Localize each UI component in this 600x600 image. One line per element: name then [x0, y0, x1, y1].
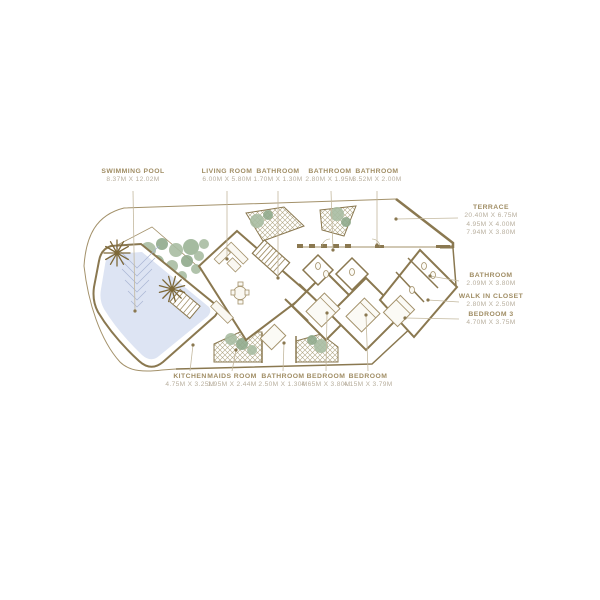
maids-bed: [260, 324, 285, 349]
label-terrace: TERRACE 20.40M X 6.75M 4.95M X 4.00M 7.9…: [464, 203, 517, 238]
room-name: BEDROOM: [343, 372, 392, 381]
room-dims: 4.15M X 3.79M: [343, 381, 392, 390]
room-dims: 7.94M X 3.80M: [464, 229, 517, 238]
room-dims: 2.09M X 3.80M: [466, 280, 515, 289]
label-bathroom-2: BATHROOM 2.80M X 1.95M: [305, 167, 354, 185]
floor-plan-page: SWIMMING POOL 8.37M X 12.02M LIVING ROOM…: [0, 0, 600, 600]
room-dims: 2.50M X 1.30M: [258, 381, 307, 390]
room-name: TERRACE: [464, 203, 517, 212]
label-bedroom-2: BEDROOM 4.15M X 3.79M: [343, 372, 392, 390]
room-name: WALK IN CLOSET: [459, 292, 523, 301]
room-name: BATHROOM: [253, 167, 302, 176]
label-bathroom-bottom: BATHROOM 2.50M X 1.30M: [258, 372, 307, 390]
label-maids-room: MAIDS ROOM 1.95M X 2.44M: [207, 372, 256, 390]
room-name: BEDROOM 3: [466, 310, 515, 319]
terrace-rear-wall: [297, 239, 452, 248]
room-name: MAIDS ROOM: [207, 372, 256, 381]
room-name: BATHROOM: [258, 372, 307, 381]
label-living-room: LIVING ROOM 6.00M X 5.80M: [202, 167, 253, 185]
room-dims: 2.80M X 2.50M: [459, 301, 523, 310]
room-dims: 20.40M X 6.75M: [464, 212, 517, 221]
room-dims: 4.95M X 4.00M: [464, 221, 517, 230]
room-name: SWIMMING POOL: [101, 167, 164, 176]
room-dims: 3.52M X 2.00M: [352, 176, 401, 185]
label-bathroom-3: BATHROOM 3.52M X 2.00M: [352, 167, 401, 185]
label-bathroom-right: BATHROOM 2.09M X 3.80M: [466, 271, 515, 289]
room-name: BATHROOM: [466, 271, 515, 280]
room-dims: 6.00M X 5.80M: [202, 176, 253, 185]
room-dims: 2.80M X 1.95M: [305, 176, 354, 185]
label-swimming-pool: SWIMMING POOL 8.37M X 12.02M: [101, 167, 164, 185]
room-dims: 4.70M X 3.75M: [466, 319, 515, 328]
label-walk-in-closet: WALK IN CLOSET 2.80M X 2.50M: [459, 292, 523, 310]
room-dims: 8.37M X 12.02M: [101, 176, 164, 185]
label-bedroom-3: BEDROOM 3 4.70M X 3.75M: [466, 310, 515, 328]
room-name: LIVING ROOM: [202, 167, 253, 176]
living-room-walls: [199, 231, 308, 340]
room-name: BATHROOM: [305, 167, 354, 176]
room-dims: 1.95M X 2.44M: [207, 381, 256, 390]
room-name: BATHROOM: [352, 167, 401, 176]
room-dims: 1.70M X 1.30M: [253, 176, 302, 185]
label-bathroom-1: BATHROOM 1.70M X 1.30M: [253, 167, 302, 185]
